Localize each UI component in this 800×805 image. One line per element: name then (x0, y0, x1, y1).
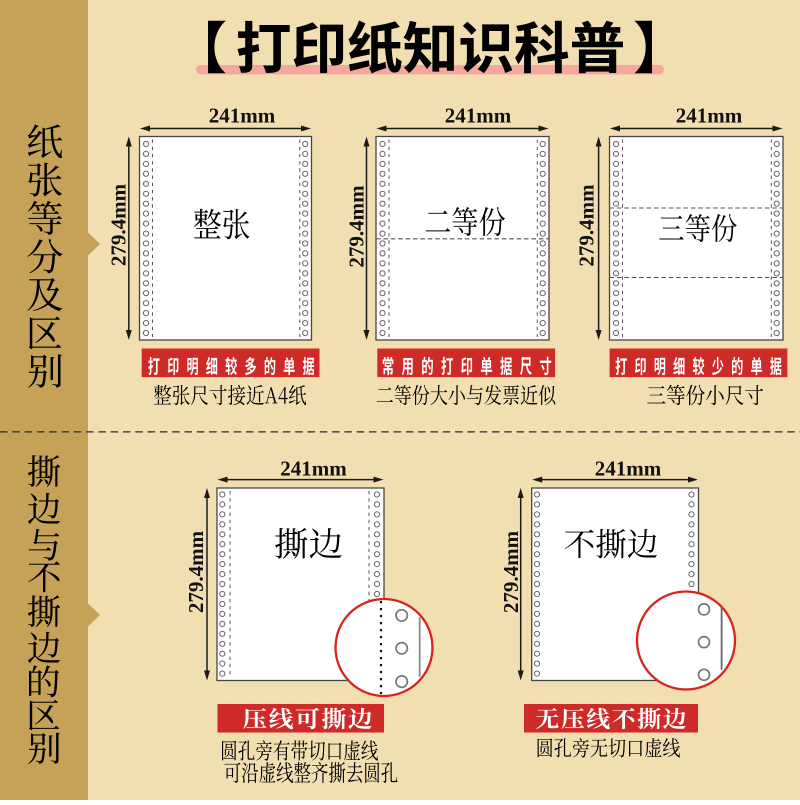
svg-text:279.4mm: 279.4mm (344, 185, 368, 268)
svg-text:279.4mm: 279.4mm (106, 183, 130, 266)
svg-text:241mm: 241mm (280, 457, 347, 481)
svg-text:241mm: 241mm (676, 104, 743, 128)
svg-text:241mm: 241mm (209, 104, 276, 128)
svg-text:279.4mm: 279.4mm (574, 184, 598, 267)
svg-text:279.4mm: 279.4mm (499, 530, 523, 613)
svg-text:279.4mm: 279.4mm (184, 530, 208, 613)
svg-text:241mm: 241mm (445, 104, 512, 128)
svg-text:241mm: 241mm (595, 457, 662, 481)
